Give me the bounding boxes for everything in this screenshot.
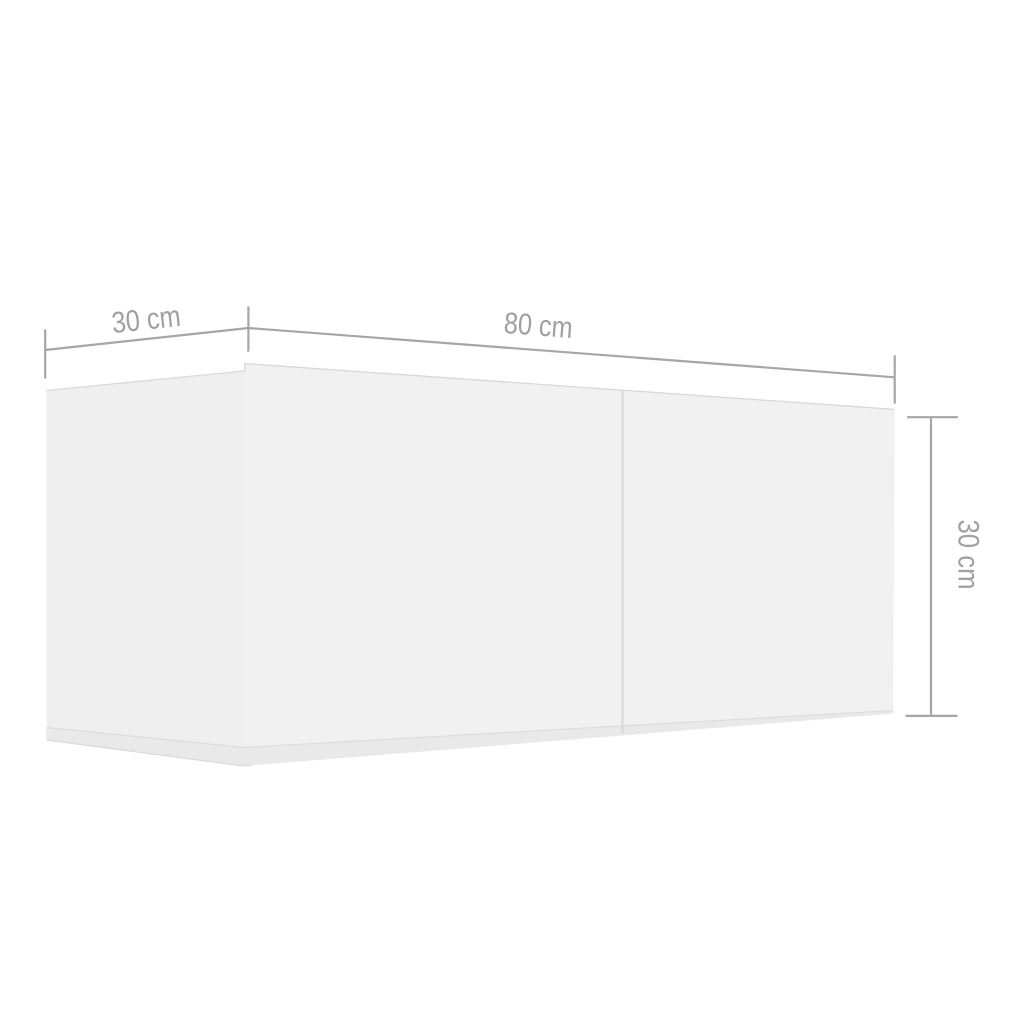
svg-text:80 cm: 80 cm [503, 307, 574, 345]
svg-text:30 cm: 30 cm [952, 520, 985, 590]
